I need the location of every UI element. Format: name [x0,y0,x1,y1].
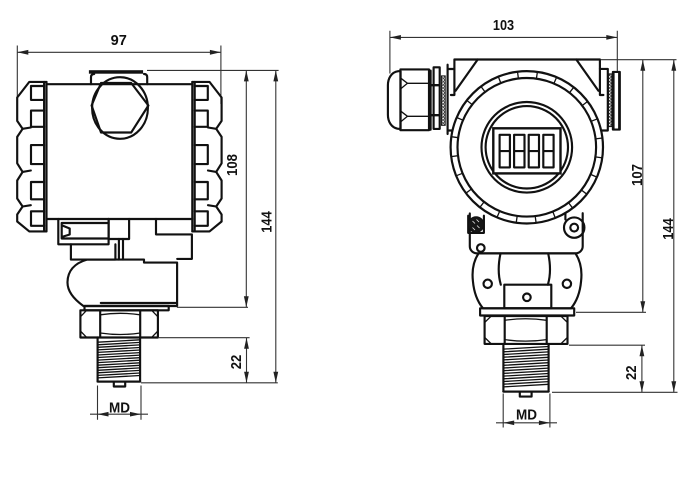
svg-text:22: 22 [228,355,245,370]
svg-text:144: 144 [258,211,275,233]
svg-text:108: 108 [224,154,241,176]
svg-text:107: 107 [629,164,646,186]
svg-text:22: 22 [623,366,640,381]
svg-text:MD: MD [516,407,537,424]
svg-text:97: 97 [111,32,127,49]
svg-text:103: 103 [493,17,514,34]
